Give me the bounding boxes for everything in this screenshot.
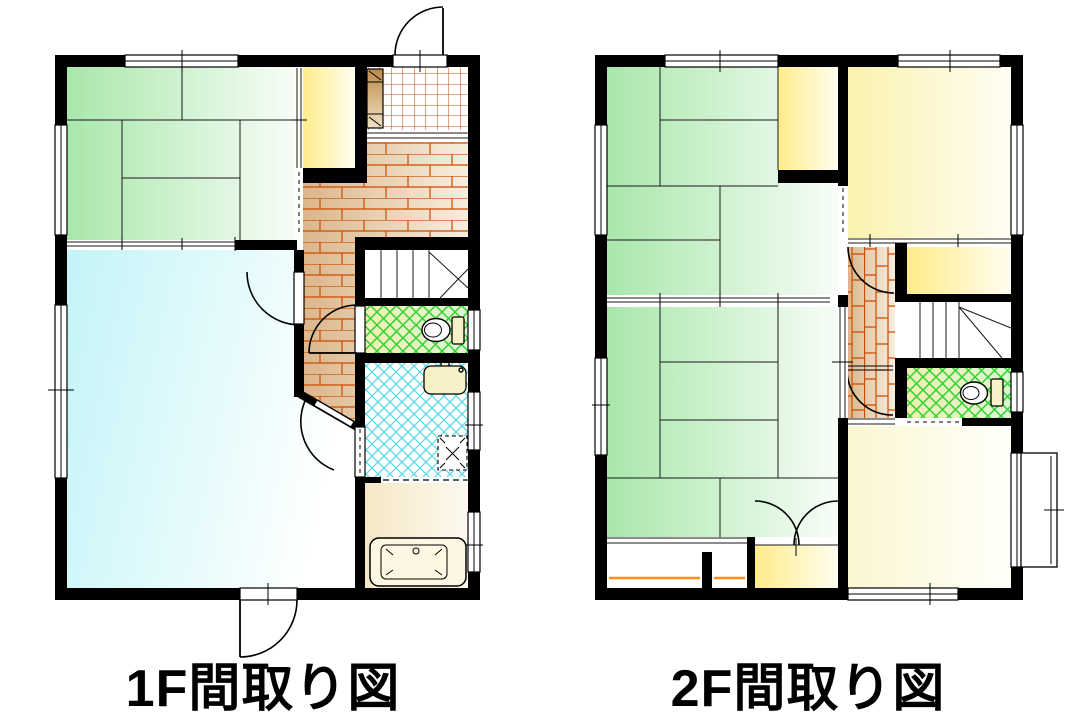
bathroom-1f [365, 483, 468, 588]
toilet-room-2f [907, 368, 1011, 418]
shoe-cabinet [367, 69, 383, 128]
toilet-room-1f [365, 306, 468, 353]
western-room-northeast-2f [848, 67, 1011, 248]
window [465, 392, 483, 450]
floor2-caption: 2F間取り図 [671, 660, 946, 718]
washroom-sliding-door [355, 427, 365, 477]
window [465, 512, 483, 572]
window [55, 125, 67, 235]
window [595, 125, 607, 235]
closet-east-2f [907, 247, 1011, 294]
floor1-caption: 1F間取り図 [126, 660, 401, 718]
hallway-2f [844, 247, 895, 424]
entrance-genkan [367, 67, 468, 142]
tatami-room-1f [67, 67, 295, 240]
staircase-1f [365, 250, 468, 298]
floorplan-1f [48, 7, 483, 657]
window [1011, 125, 1023, 235]
entrance-door [393, 7, 447, 72]
window [592, 358, 610, 455]
back-door [240, 583, 297, 657]
closet-north-2f [778, 67, 838, 170]
window [468, 310, 480, 350]
washroom-1f [365, 362, 468, 477]
staircase-2f [907, 302, 1011, 358]
floorplan-drawing: 1F間取り図 2F間取り図 [0, 0, 1080, 721]
balcony-east-2f [1021, 453, 1064, 567]
floorplan-2f [592, 50, 1064, 605]
washer-pan-icon [438, 436, 467, 470]
bathtub-icon [370, 538, 466, 586]
toilet-icon [422, 317, 464, 344]
washbasin-icon [424, 362, 466, 394]
window [1011, 372, 1023, 412]
bedroom-southeast-2f [848, 426, 1011, 588]
balcony-post [702, 552, 712, 588]
floorplan-page: 1F間取り図 2F間取り図 [0, 0, 1080, 721]
tatami-room-south-2f [607, 307, 838, 537]
